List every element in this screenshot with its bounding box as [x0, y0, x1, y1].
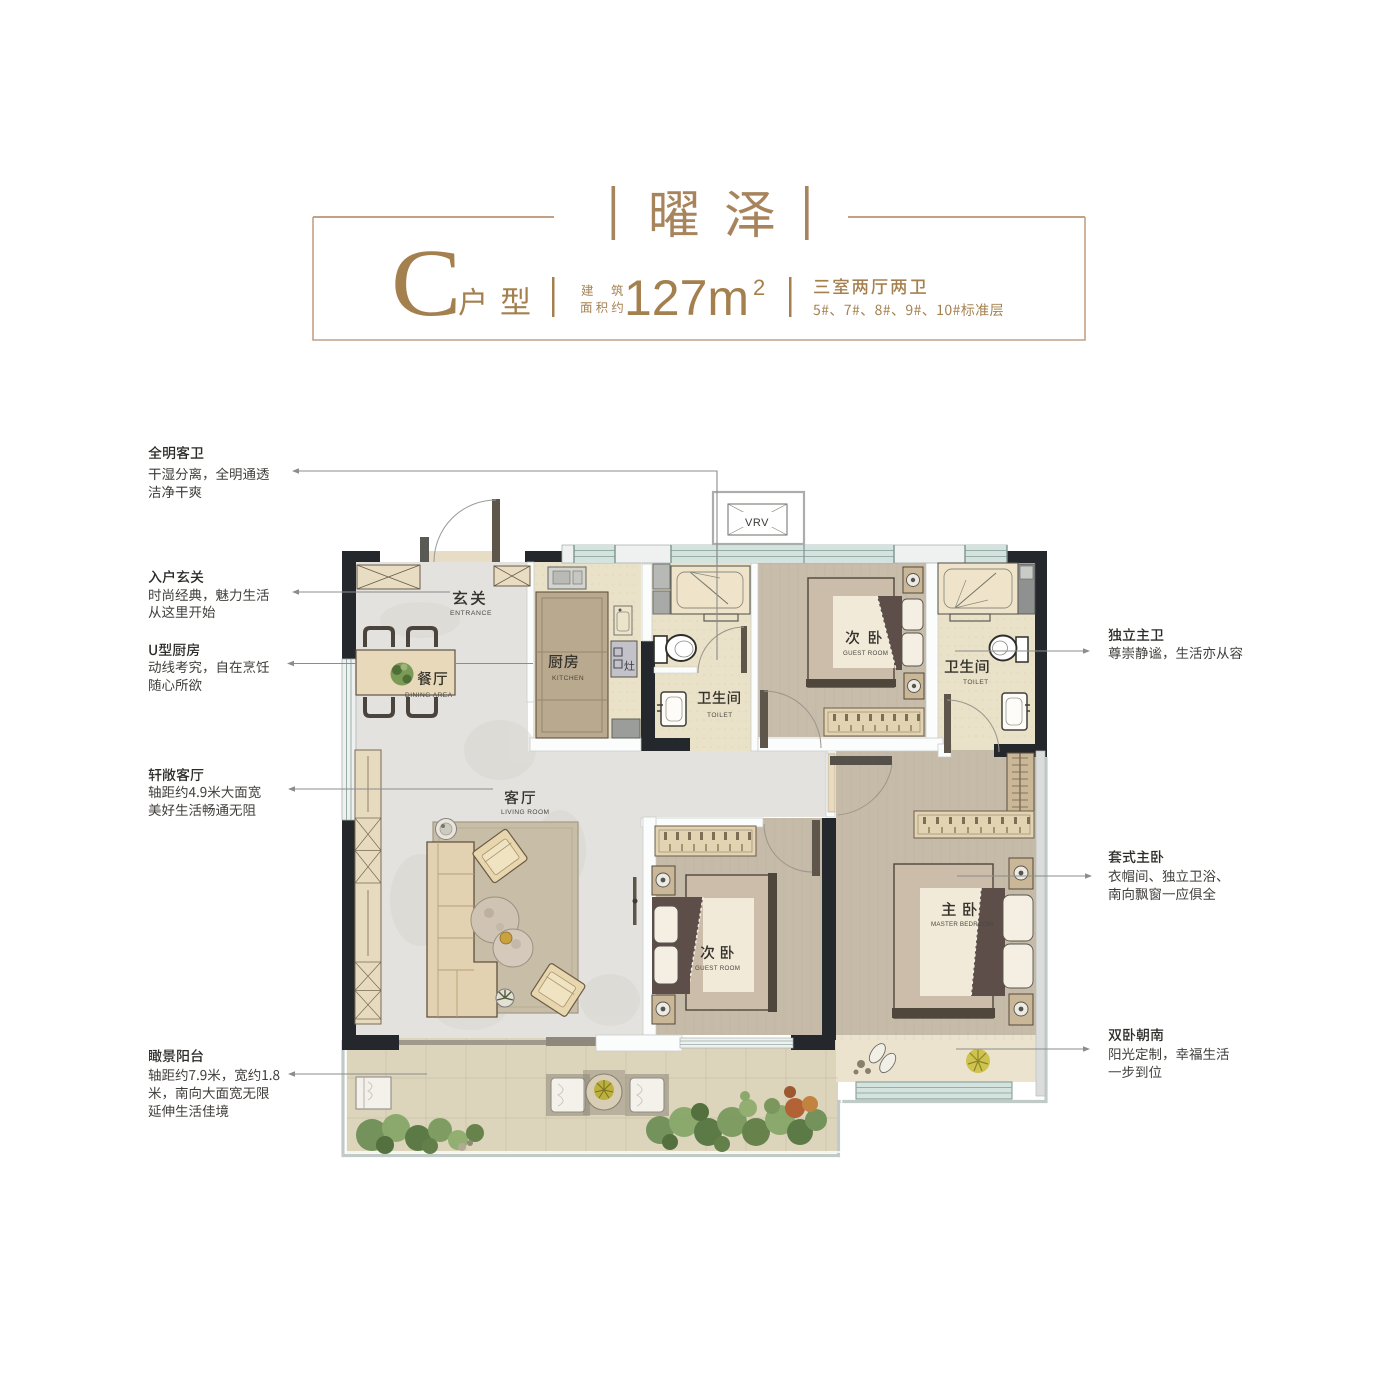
- svg-text:TOILET: TOILET: [707, 712, 733, 719]
- svg-text:GUEST ROOM: GUEST ROOM: [695, 965, 740, 972]
- svg-text:TOILET: TOILET: [963, 679, 989, 686]
- svg-text:GUEST ROOM: GUEST ROOM: [843, 650, 888, 657]
- svg-text:127m: 127m: [624, 270, 749, 326]
- svg-text:ENTRANCE: ENTRANCE: [450, 610, 492, 617]
- svg-text:LIVING ROOM: LIVING ROOM: [501, 809, 549, 816]
- svg-text:C: C: [391, 229, 461, 336]
- svg-text:MASTER BEDROOM: MASTER BEDROOM: [931, 921, 993, 928]
- svg-text:DINING AREA: DINING AREA: [405, 692, 453, 699]
- svg-text:VRV: VRV: [745, 517, 769, 529]
- svg-text:KITCHEN: KITCHEN: [552, 675, 584, 682]
- svg-text:2: 2: [753, 275, 765, 300]
